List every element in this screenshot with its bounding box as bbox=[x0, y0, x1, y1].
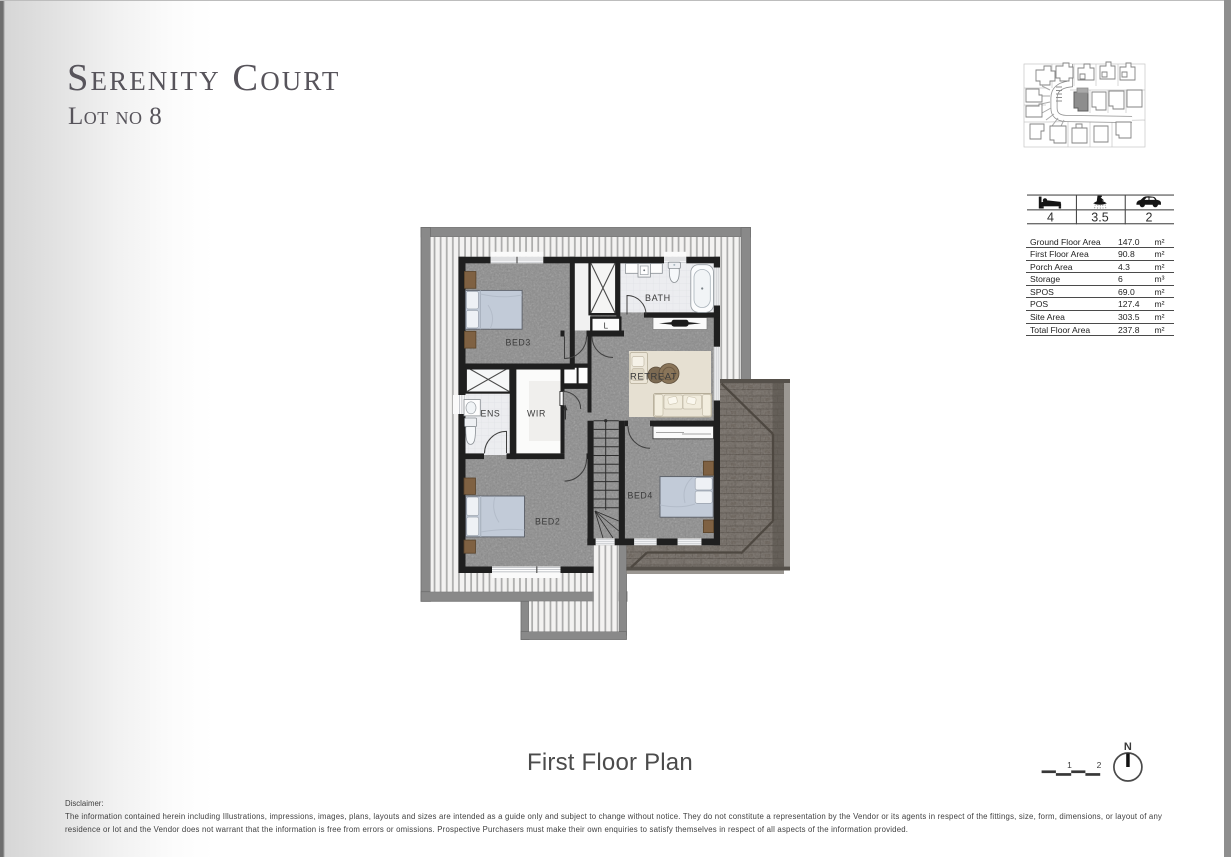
svg-text:3.5: 3.5 bbox=[1091, 210, 1108, 224]
svg-text:WIR: WIR bbox=[527, 409, 546, 419]
svg-text:BATH: BATH bbox=[645, 293, 671, 303]
svg-text:BED3: BED3 bbox=[506, 338, 531, 348]
svg-text:L: L bbox=[604, 322, 609, 331]
svg-text:BED4: BED4 bbox=[628, 491, 653, 501]
svg-text:ENS: ENS bbox=[481, 409, 501, 419]
svg-text:2: 2 bbox=[1146, 210, 1153, 224]
svg-text:BED2: BED2 bbox=[535, 517, 560, 527]
svg-text:1: 1 bbox=[1067, 760, 1072, 770]
svg-text:RETREAT: RETREAT bbox=[630, 371, 677, 382]
svg-text:2: 2 bbox=[1097, 760, 1102, 770]
svg-text:4: 4 bbox=[1047, 210, 1054, 224]
svg-text:N: N bbox=[1124, 741, 1132, 753]
